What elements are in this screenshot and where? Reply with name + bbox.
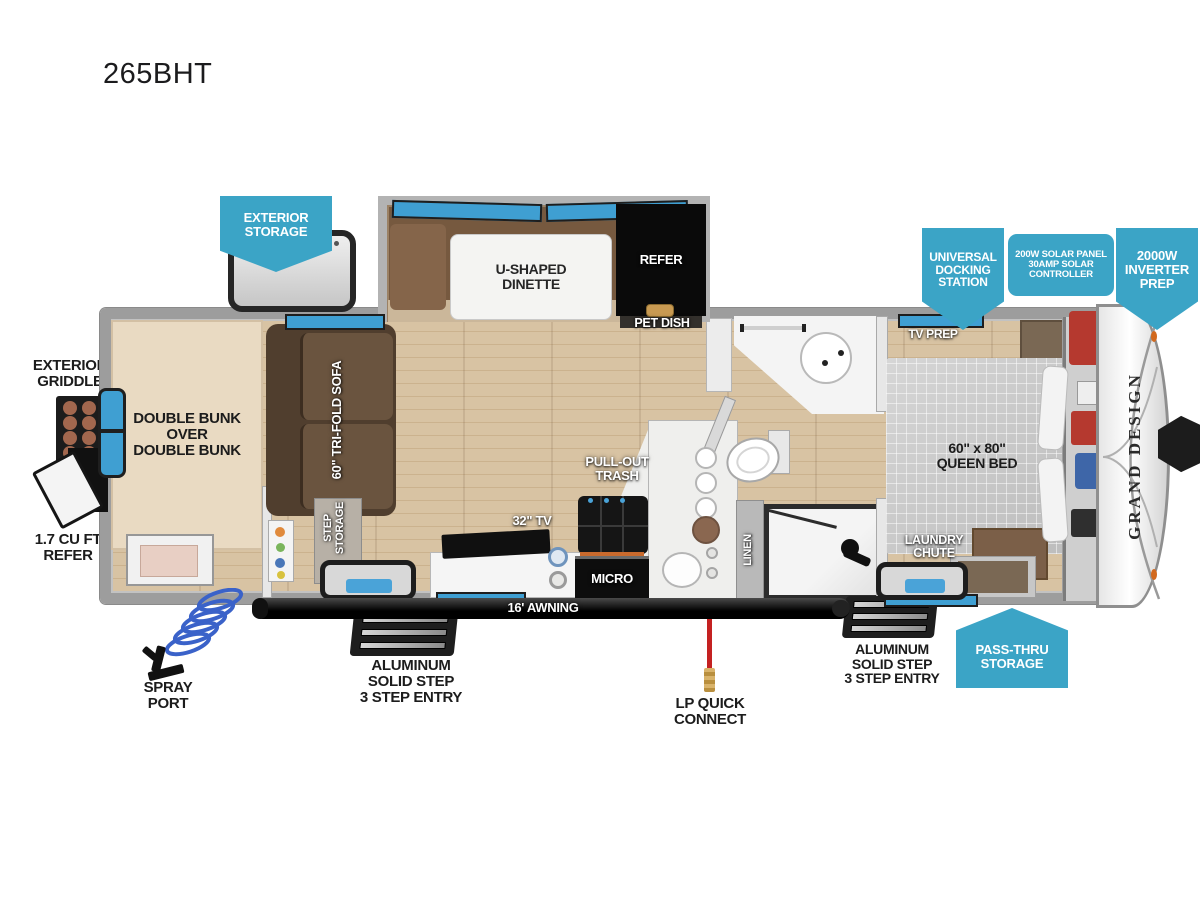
sink-knob-1 [695, 447, 717, 469]
shower [764, 504, 882, 600]
refer-label: REFER [640, 253, 683, 267]
micro-label: MICRO [591, 572, 633, 586]
under-bunk-cabinet [126, 534, 214, 586]
entry-door-main [320, 560, 416, 600]
lp-label: LP QUICK CONNECT [643, 696, 777, 728]
trash-label: PULL-OUT TRASH [562, 455, 672, 482]
callout-pass-thru: PASS-THRU STORAGE [956, 608, 1068, 688]
sink-small-1 [706, 547, 718, 559]
tv-prep-label: TV PREP [893, 328, 973, 341]
dinette-table: U-SHAPED DINETTE [450, 234, 612, 320]
tv-label: 32" TV [487, 514, 577, 528]
microwave: MICRO [575, 556, 649, 599]
bunk-bed: DOUBLE BUNK OVER DOUBLE BUNK [111, 320, 263, 550]
lp-line-icon [707, 618, 712, 672]
bath-sink [800, 332, 852, 384]
brand-logo: GRAND DESIGN [1125, 313, 1145, 599]
dinette-bench [390, 224, 446, 310]
stove [578, 496, 648, 554]
toy-shelf [268, 520, 294, 582]
marker-light-top [1151, 331, 1157, 342]
lp-connector-icon [704, 668, 715, 692]
awning-label: 16' AWNING [488, 601, 598, 615]
bunk-side-window [98, 388, 126, 478]
marker-light-bottom [1151, 569, 1157, 580]
entry-door-bedroom [876, 562, 968, 600]
kitchen-sink [662, 552, 702, 588]
dinette-label: U-SHAPED DINETTE [496, 262, 567, 291]
step-right-label: ALUMINUM SOLID STEP 3 STEP ENTRY [830, 642, 954, 686]
sofa-label: 60" TRI-FOLD SOFA [330, 332, 346, 508]
sink-knob-2 [695, 472, 717, 494]
sink-small-2 [706, 567, 718, 579]
callout-solar: 200W SOLAR PANEL 30AMP SOLAR CONTROLLER [1008, 234, 1114, 296]
sofa-window [285, 314, 385, 330]
floorplan-page: 265BHT U-SHAPED DINETTE REFER PET DISH D… [0, 0, 1200, 900]
bunk-label: DOUBLE BUNK OVER DOUBLE BUNK [133, 411, 241, 458]
counter-bowl-brown [692, 516, 720, 544]
refrigerator: REFER [616, 204, 706, 316]
spray-nozzle-icon [140, 644, 196, 688]
pantry [706, 318, 732, 392]
step-storage-label: STEP STORAGE [323, 492, 349, 564]
linen-label: LINEN [743, 515, 757, 585]
pet-dish-label: PET DISH [616, 317, 708, 330]
console-burner-blue [548, 547, 568, 567]
page-title: 265BHT [103, 58, 212, 91]
console-burner-gray [549, 571, 567, 589]
step-left-label: ALUMINUM SOLID STEP 3 STEP ENTRY [342, 658, 480, 705]
queen-bed-label: 60" x 80" QUEEN BED [937, 441, 1018, 470]
laundry-chute-label: LAUNDRY CHUTE [886, 534, 982, 560]
